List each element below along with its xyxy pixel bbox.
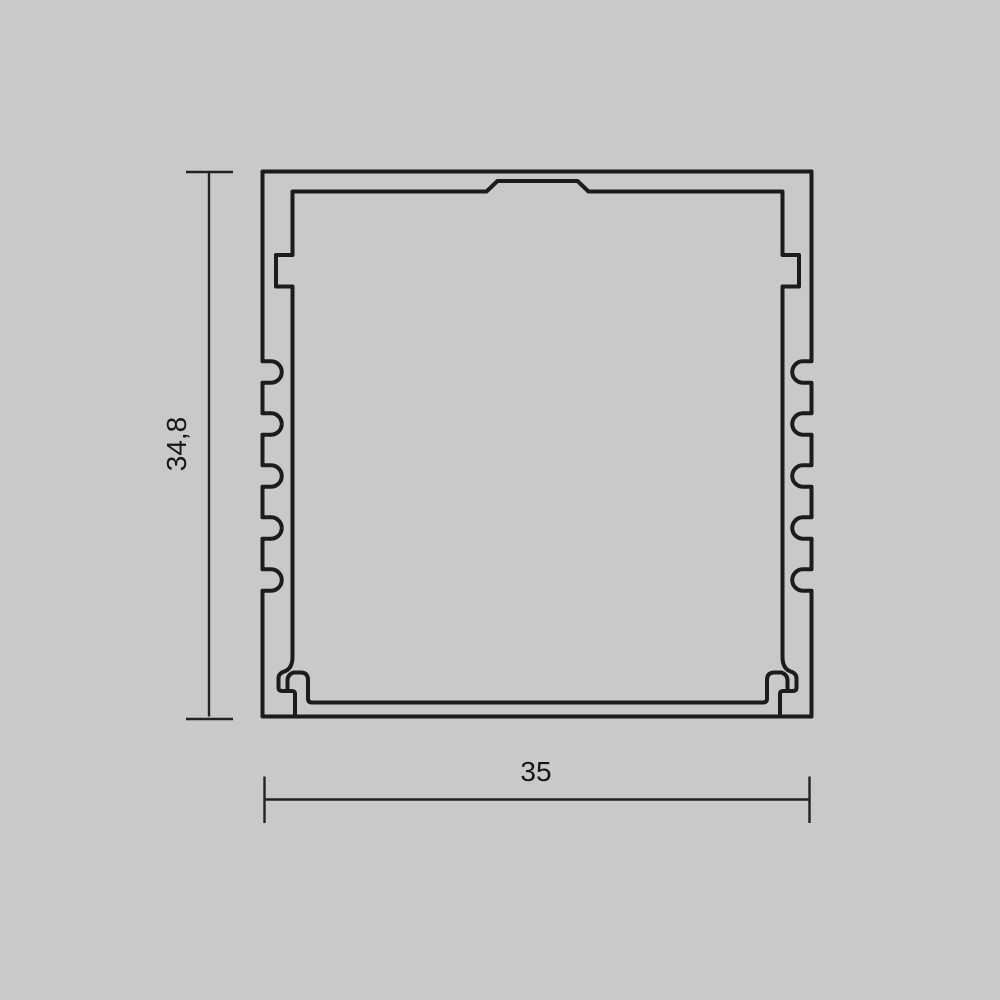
height-dimension: 34,8 [161,172,233,719]
profile-cross-section-drawing: 34,8 35 [0,0,1000,1000]
profile-outer-contour [263,172,812,717]
height-dimension-label: 34,8 [161,417,192,472]
profile-bottom-ledge-contour [288,673,788,703]
width-dimension: 35 [265,756,810,823]
drawing-canvas: 34,8 35 [0,0,1000,1000]
profile-inner-contour [276,181,799,717]
width-dimension-label: 35 [520,756,551,787]
